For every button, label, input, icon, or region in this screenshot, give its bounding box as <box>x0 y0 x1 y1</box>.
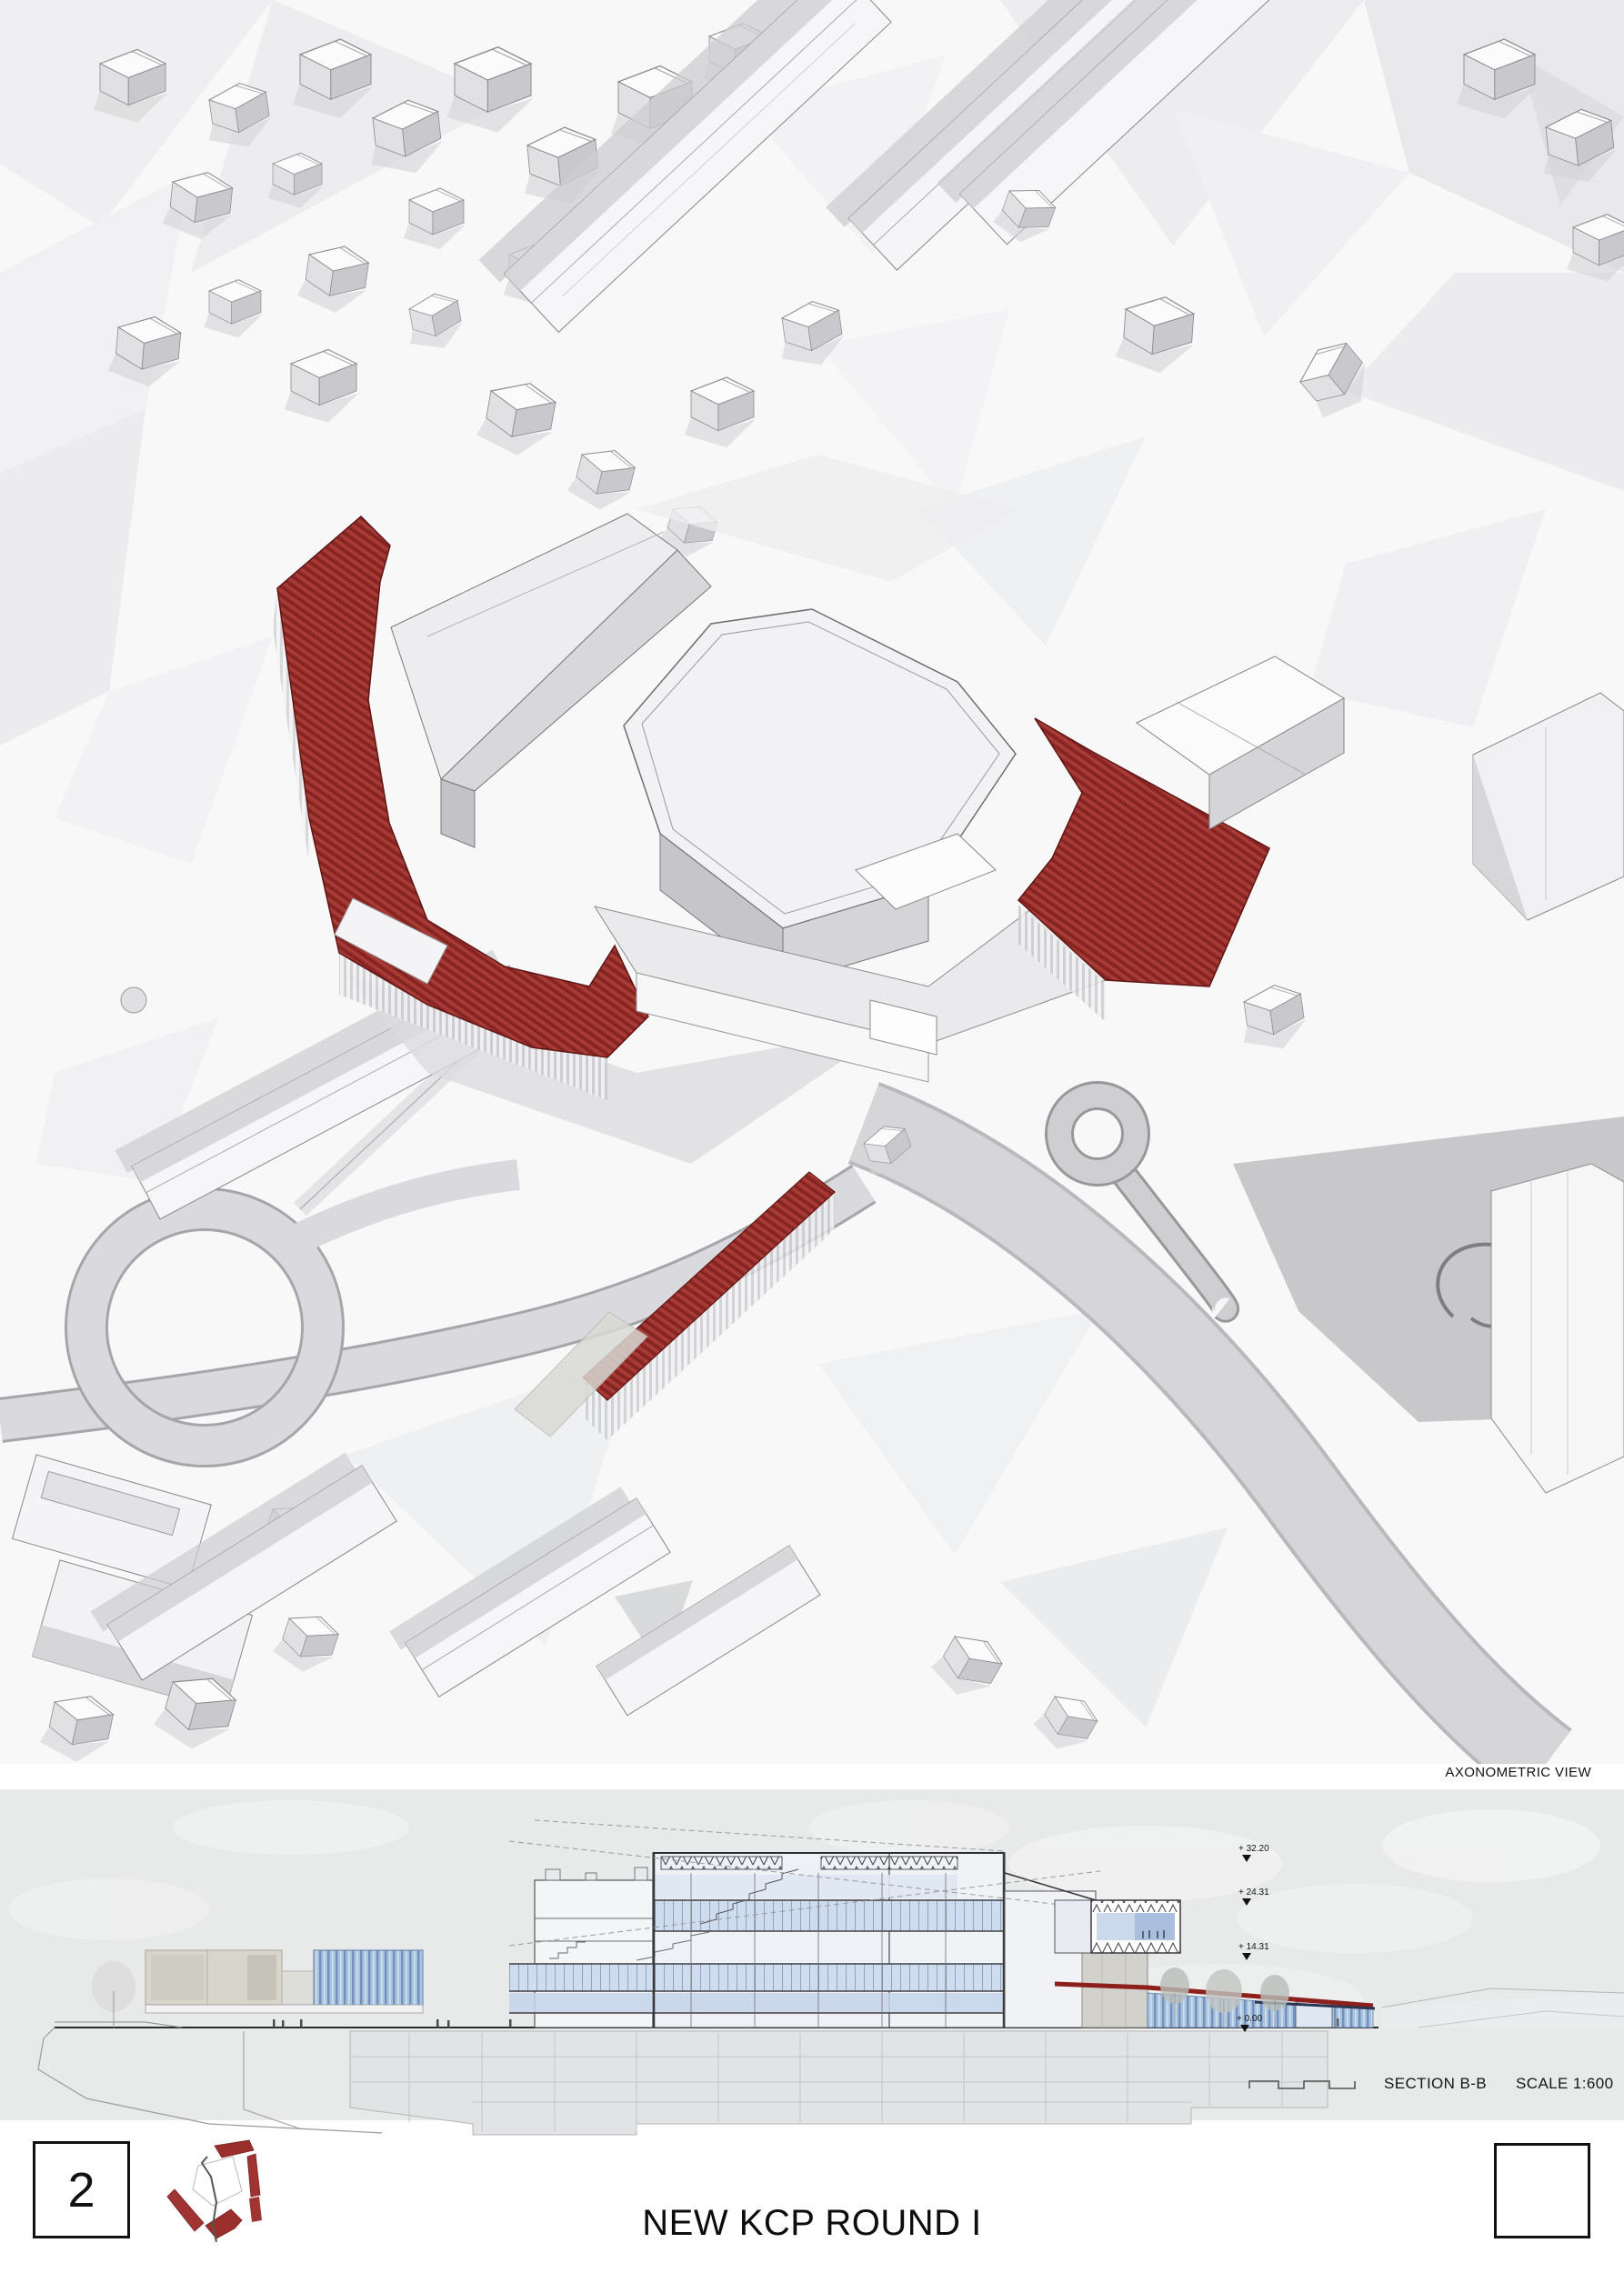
level-label: + 0.00 <box>1237 2014 1263 2024</box>
basement <box>244 2031 1328 2135</box>
section-label: SECTION B-B <box>1384 2075 1487 2093</box>
level-label: + 32.20 <box>1238 1844 1269 1854</box>
section-main-building <box>509 1820 1100 2028</box>
section-caption: SECTION B-B SCALE 1:600 <box>1248 2073 1613 2095</box>
level-label: + 24.31 <box>1238 1887 1269 1898</box>
board-title: NEW KCP ROUND I <box>0 2203 1624 2244</box>
presentation-board: AXONOMETRIC VIEW <box>0 0 1624 2273</box>
scale-label: SCALE 1:600 <box>1516 2075 1613 2093</box>
level-label: + 14.31 <box>1238 1942 1269 1952</box>
axonometric-view <box>0 0 1624 1764</box>
section-line-symbol <box>1248 2073 1368 2095</box>
